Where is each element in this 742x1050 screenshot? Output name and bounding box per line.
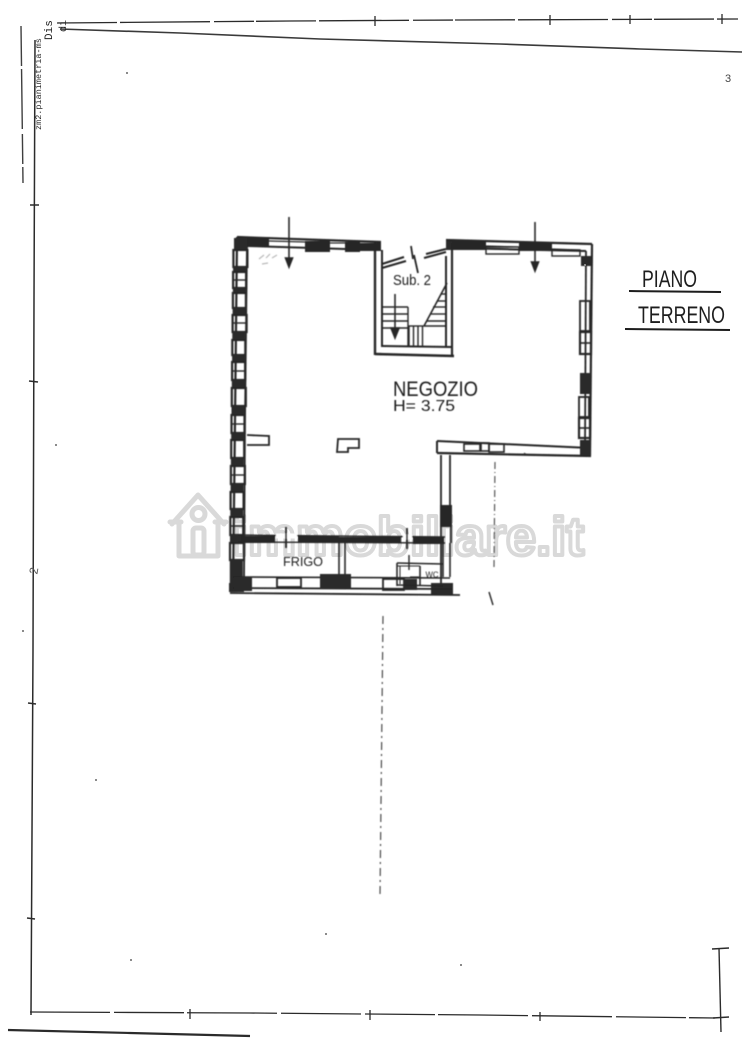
svg-text:Dis: Dis [44,20,56,40]
svg-text:di: di [58,20,70,32]
svg-text:WC: WC [426,570,439,580]
svg-text:FRIGO: FRIGO [283,554,323,569]
svg-text:zm2.pianimetria-ms: zm2.pianimetria-ms [34,38,44,130]
svg-text:TERRENO: TERRENO [638,302,725,329]
svg-text:3: 3 [725,73,731,85]
svg-text:PIANO: PIANO [642,266,697,293]
svg-text:H= 3.75: H= 3.75 [393,398,455,415]
svg-text:Sub. 2: Sub. 2 [393,272,431,289]
